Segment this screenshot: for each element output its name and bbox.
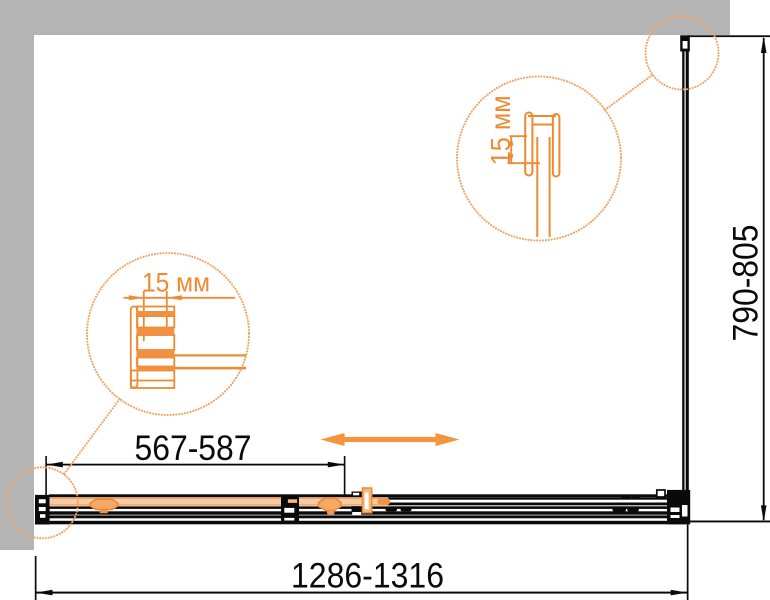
- svg-text:15 мм: 15 мм: [485, 95, 516, 165]
- svg-text:567-587: 567-587: [135, 429, 252, 468]
- svg-text:1286-1316: 1286-1316: [291, 557, 444, 596]
- svg-text:15 мм: 15 мм: [142, 268, 210, 298]
- svg-text:790-805: 790-805: [727, 225, 766, 342]
